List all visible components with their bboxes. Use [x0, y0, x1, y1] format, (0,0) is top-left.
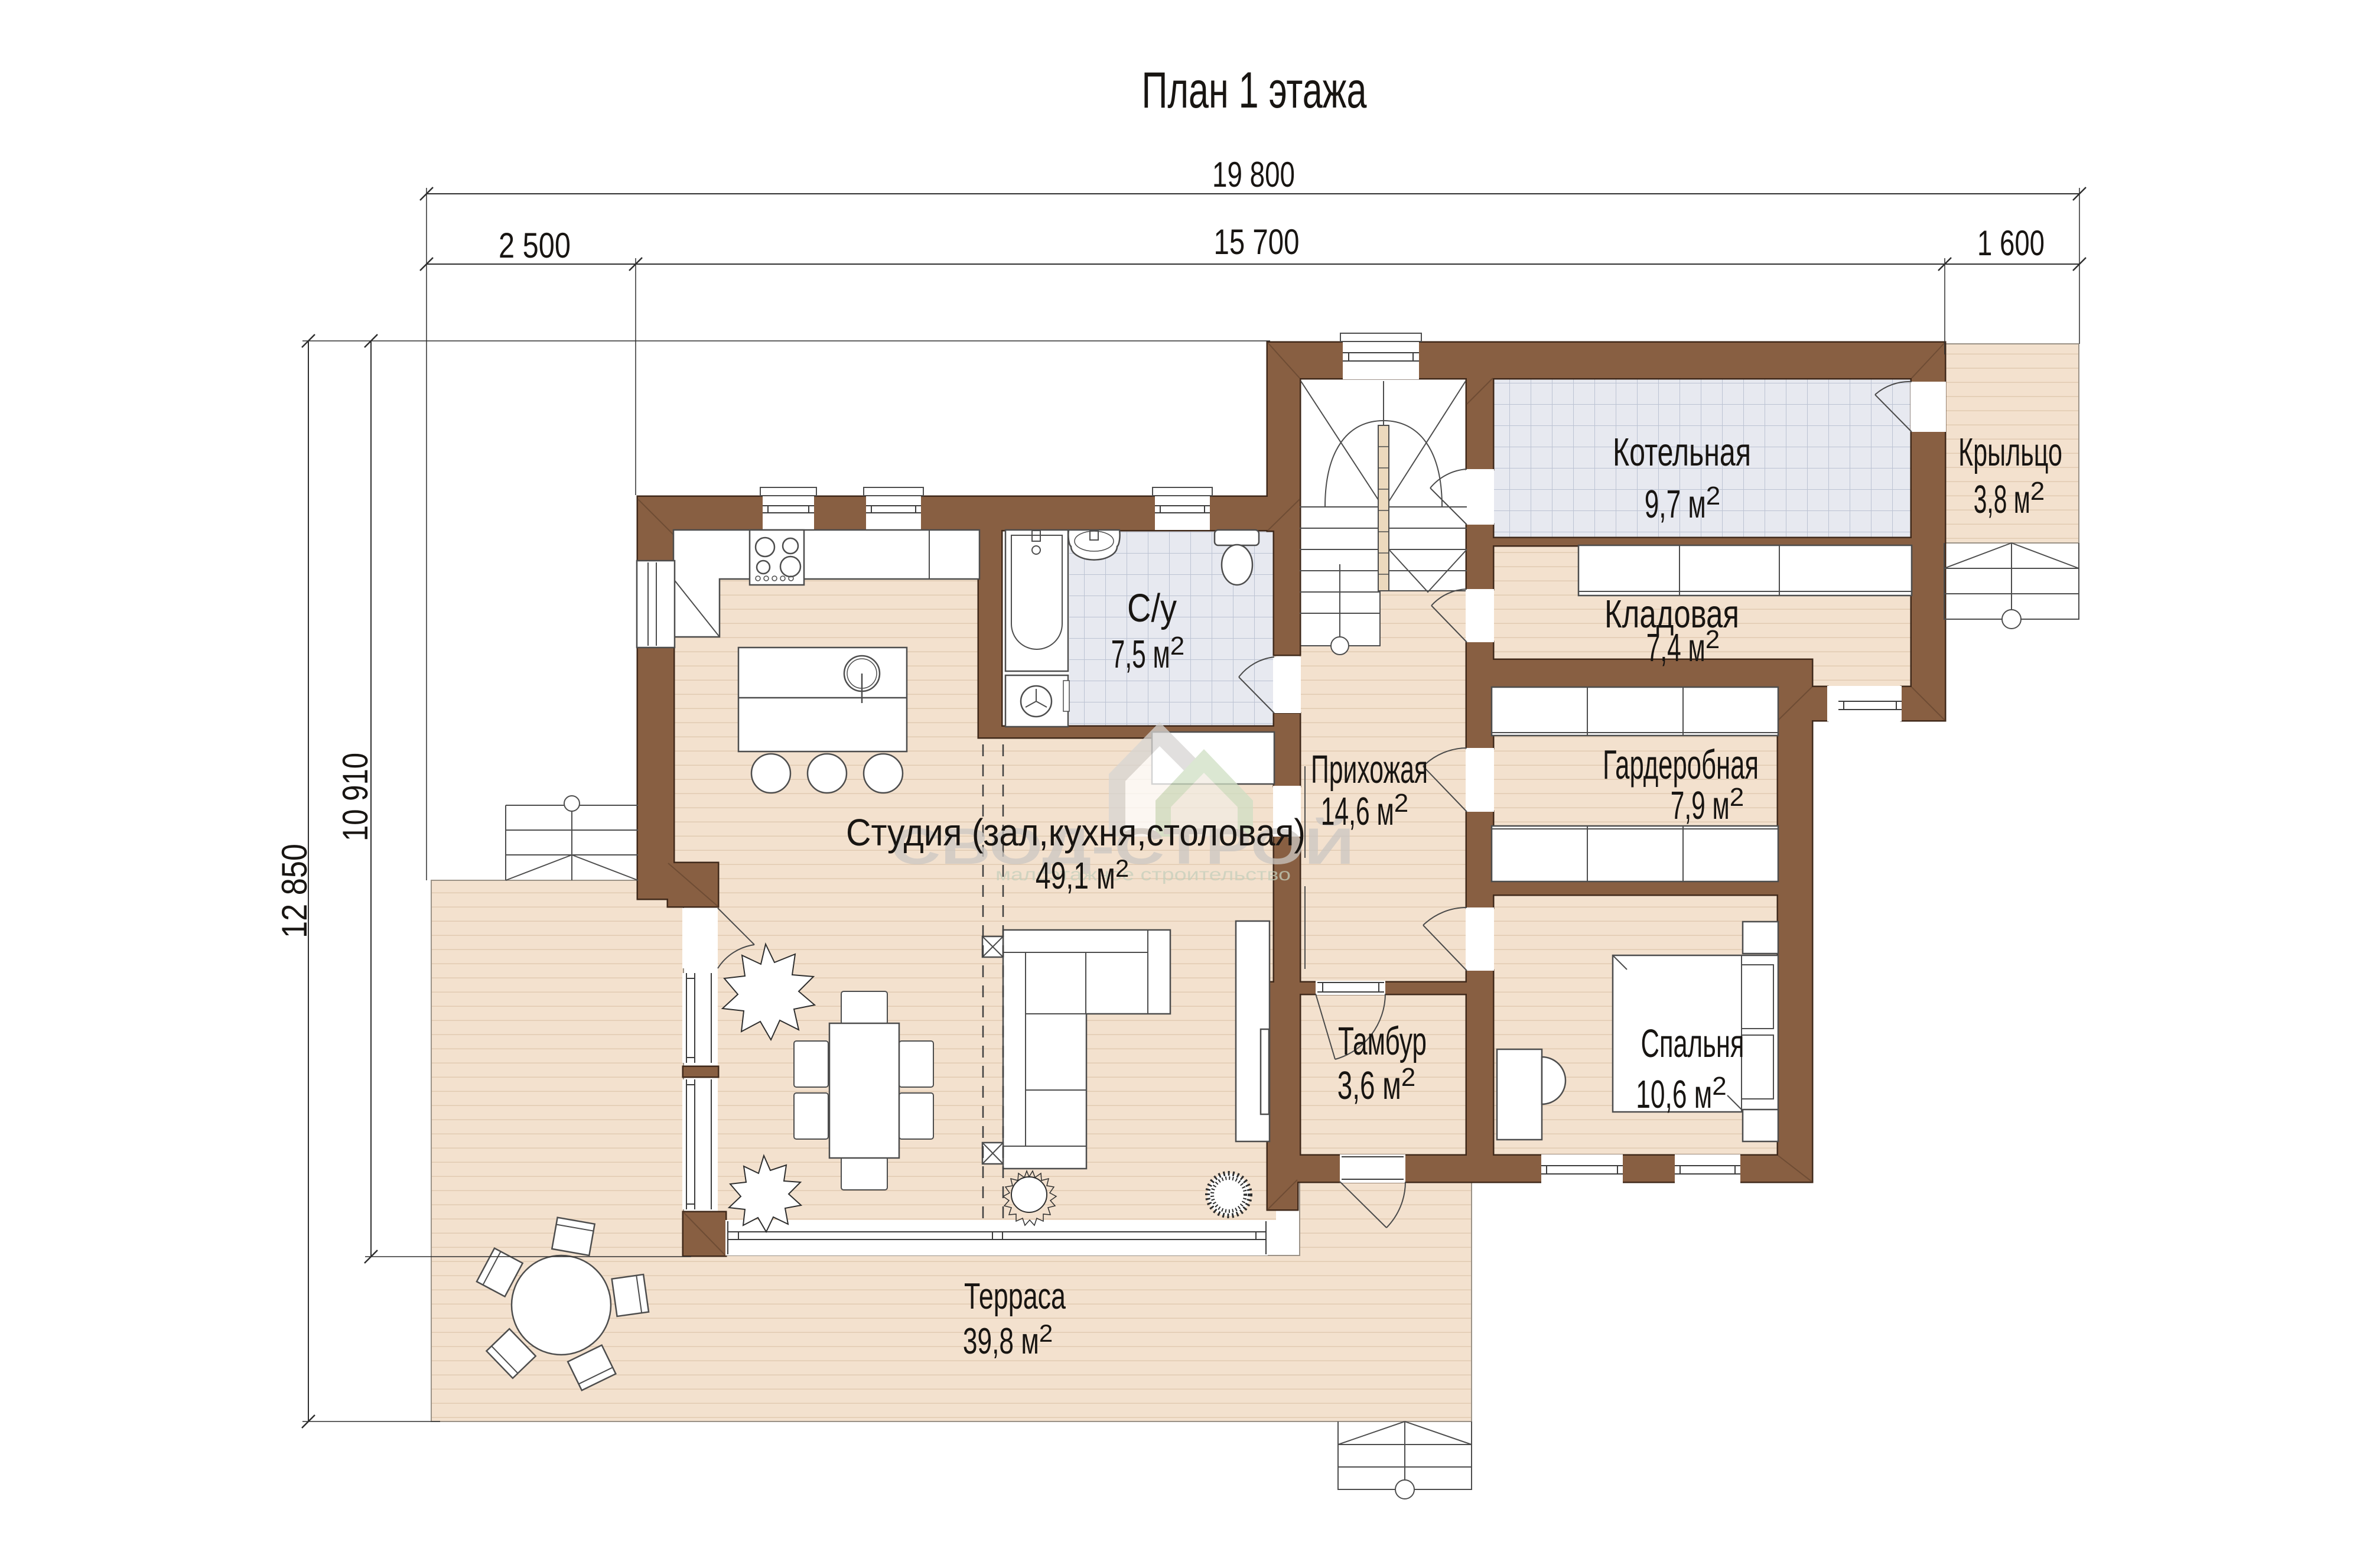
svg-text:1 600: 1 600	[1977, 223, 2045, 263]
svg-text:12 850: 12 850	[275, 844, 314, 938]
svg-text:Крыльцо: Крыльцо	[1958, 430, 2062, 474]
svg-text:49,1 м2: 49,1 м2	[1036, 854, 1129, 897]
svg-text:Прихожая: Прихожая	[1311, 747, 1428, 792]
svg-text:Терраса: Терраса	[964, 1276, 1066, 1317]
svg-text:Спальня: Спальня	[1641, 1022, 1744, 1066]
svg-text:Тамбур: Тамбур	[1338, 1019, 1427, 1063]
svg-text:15 700: 15 700	[1214, 222, 1300, 262]
svg-text:План 1 этажа: План 1 этажа	[1142, 62, 1367, 119]
svg-text:Гардеробная: Гардеробная	[1603, 741, 1759, 788]
svg-text:19 800: 19 800	[1212, 155, 1295, 194]
svg-text:С/у: С/у	[1127, 586, 1177, 630]
svg-text:2 500: 2 500	[499, 226, 571, 265]
svg-text:Котельная: Котельная	[1613, 430, 1751, 474]
svg-text:Студия (зал,кухня,столовая): Студия (зал,кухня,столовая)	[846, 811, 1306, 854]
svg-text:10 910: 10 910	[336, 753, 375, 841]
